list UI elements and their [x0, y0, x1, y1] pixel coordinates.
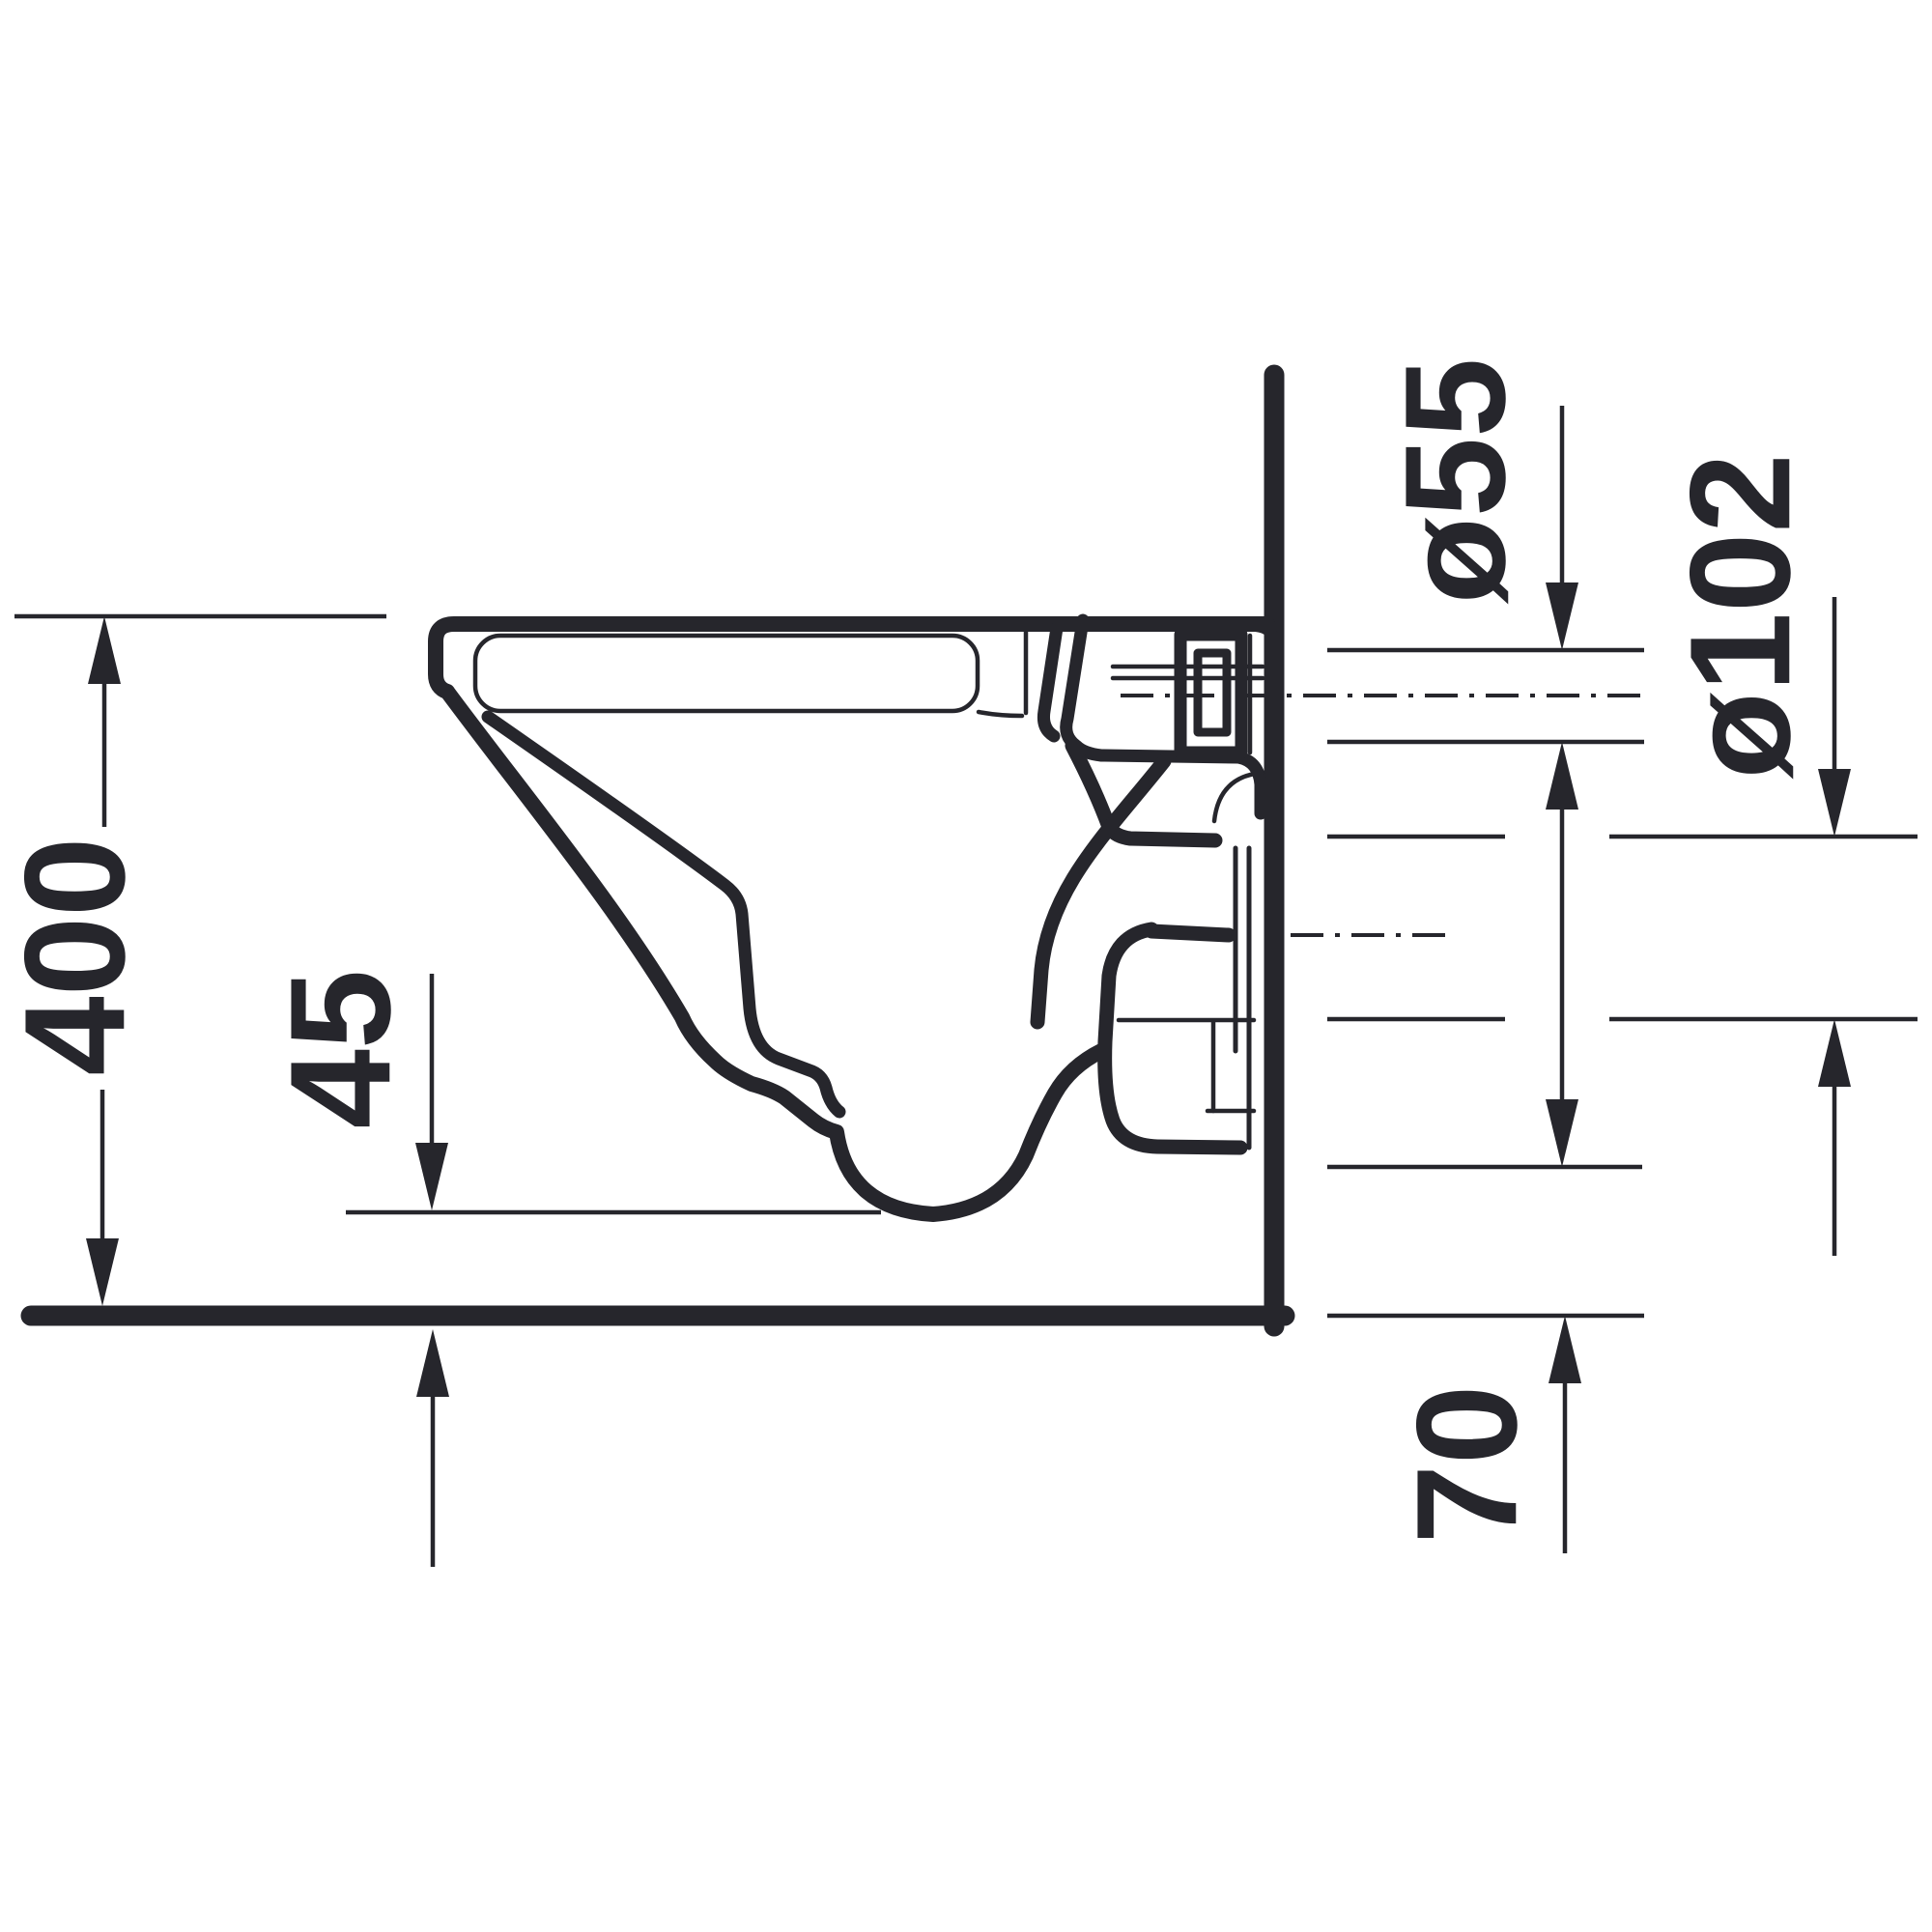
label-offset-45: 45: [261, 970, 420, 1129]
label-height-400: 400: [0, 838, 155, 1076]
outlet-elbow-top: [1151, 931, 1229, 935]
label-flush-diameter-o55: ø55: [1376, 357, 1535, 604]
background: [0, 0, 1932, 1932]
label-outlet-diameter-o102: ø102: [1661, 453, 1820, 779]
label-outlet-height-70: 70: [1387, 1385, 1547, 1545]
technical-drawing-svg: 400 45 ø55 ø102 70: [0, 0, 1932, 1932]
drawing-canvas: 400 45 ø55 ø102 70: [0, 0, 1932, 1932]
